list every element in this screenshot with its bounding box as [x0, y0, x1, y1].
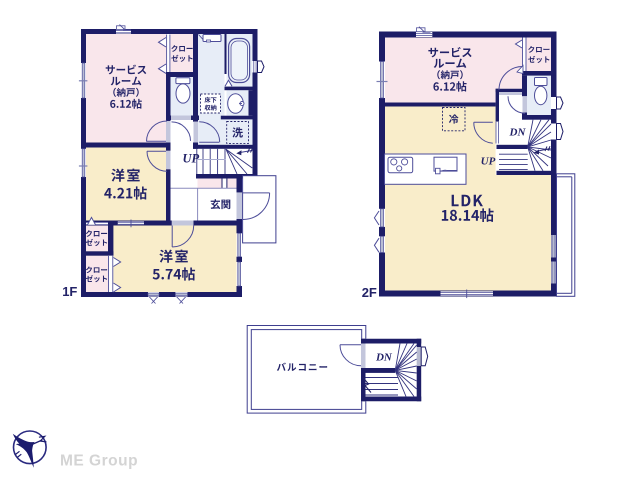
- svg-text:UP: UP: [481, 155, 496, 167]
- svg-text:2F: 2F: [362, 285, 377, 300]
- svg-text:DN: DN: [509, 127, 527, 139]
- svg-text:DN: DN: [375, 351, 393, 363]
- svg-text:ME Group: ME Group: [60, 453, 138, 470]
- svg-text:UP: UP: [182, 152, 199, 166]
- svg-text:1F: 1F: [62, 284, 77, 299]
